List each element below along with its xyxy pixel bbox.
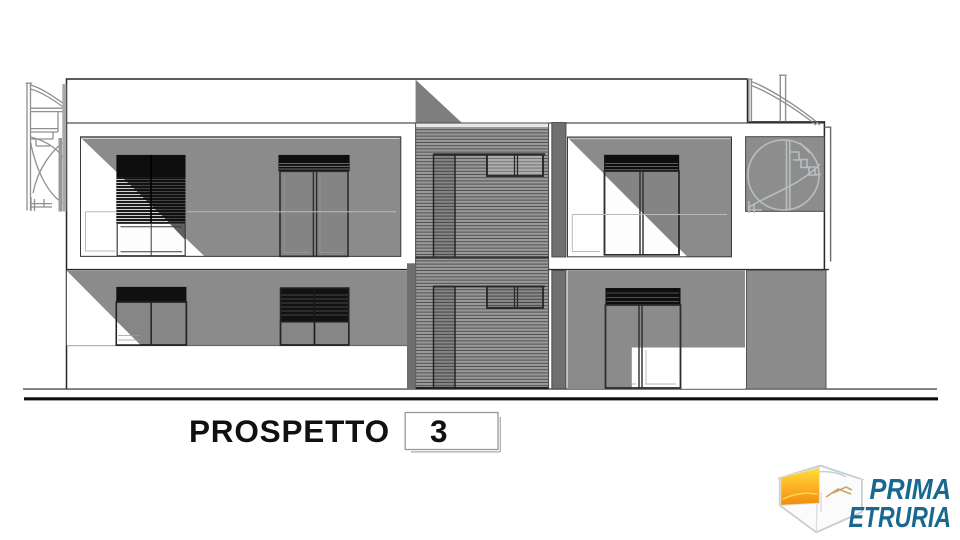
svg-text:3: 3	[430, 413, 448, 449]
svg-text:PROSPETTO: PROSPETTO	[189, 413, 390, 449]
svg-text:ETRURIA: ETRURIA	[849, 502, 952, 534]
